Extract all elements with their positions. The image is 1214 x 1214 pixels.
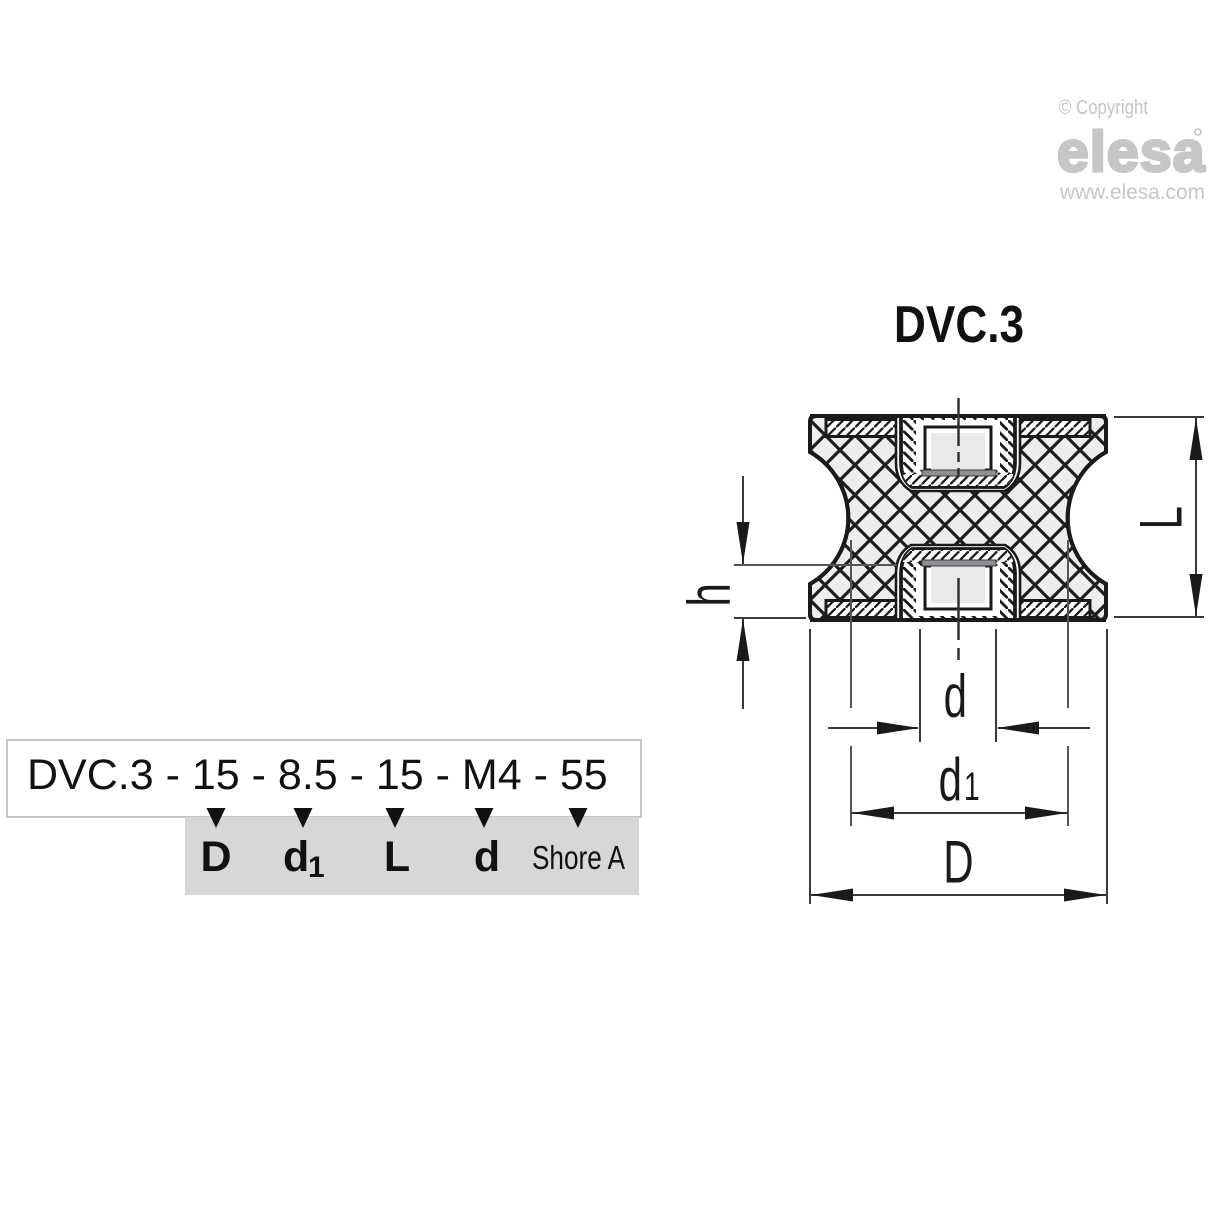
svg-text:DVC.3: DVC.3 bbox=[894, 296, 1024, 354]
svg-text:d: d bbox=[283, 833, 309, 881]
svg-text:d: d bbox=[939, 746, 962, 813]
svg-text:d: d bbox=[944, 662, 967, 729]
svg-text:1: 1 bbox=[964, 765, 980, 809]
svg-text:© Copyright: © Copyright bbox=[1059, 97, 1148, 119]
svg-text:1: 1 bbox=[308, 851, 325, 884]
svg-text:L: L bbox=[1127, 506, 1194, 529]
svg-text:d: d bbox=[474, 833, 500, 881]
svg-text:Shore A: Shore A bbox=[532, 839, 625, 876]
svg-text:elesa: elesa bbox=[1057, 120, 1206, 184]
svg-text:D: D bbox=[200, 833, 231, 881]
svg-text:DVC.3 - 15 - 8.5 - 15 - M4 - 5: DVC.3 - 15 - 8.5 - 15 - M4 - 55 bbox=[27, 751, 608, 799]
svg-text:h: h bbox=[675, 583, 742, 606]
svg-text:D: D bbox=[943, 828, 973, 895]
svg-text:www.elesa.com: www.elesa.com bbox=[1059, 181, 1205, 204]
svg-text:L: L bbox=[384, 833, 410, 881]
